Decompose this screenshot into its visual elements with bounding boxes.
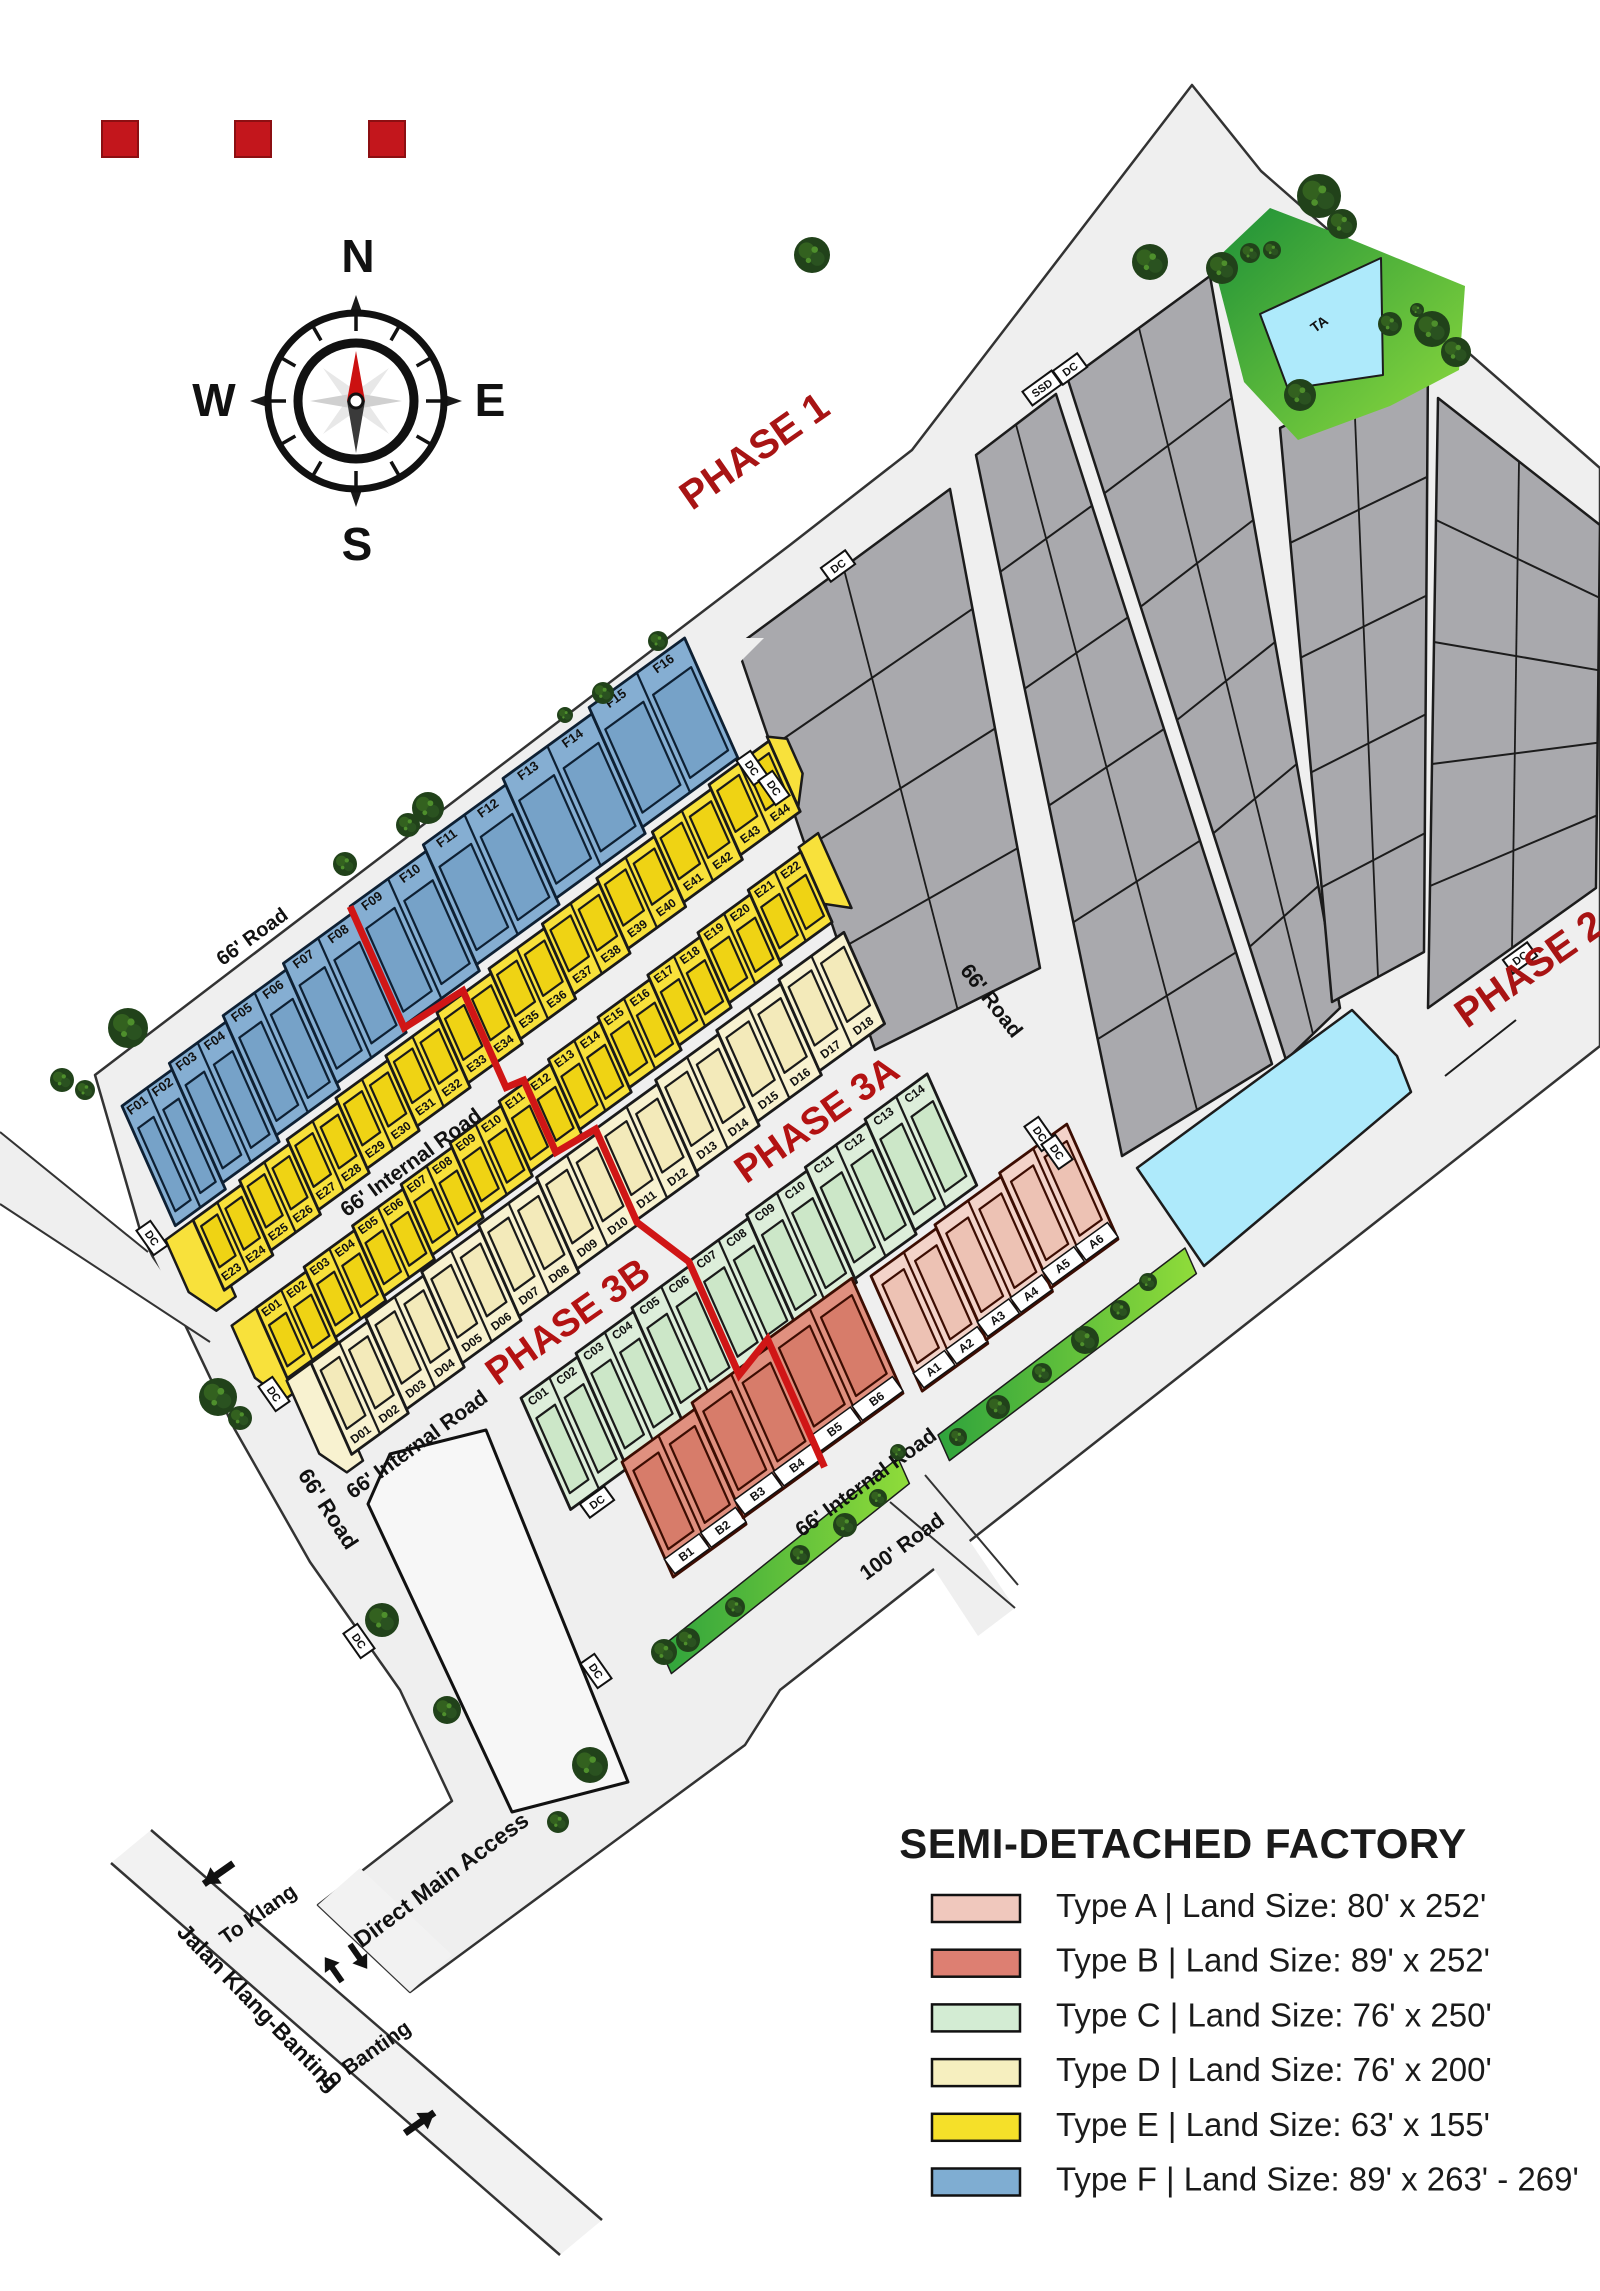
svg-text:N: N [341,230,374,282]
svg-text:SEMI-DETACHED FACTORY: SEMI-DETACHED FACTORY [899,1820,1466,1867]
svg-text:Type F | Land Size: 89' x 263': Type F | Land Size: 89' x 263' - 269' [1056,2161,1579,2198]
svg-text:Type D | Land Size: 76' x 200': Type D | Land Size: 76' x 200' [1056,2051,1492,2088]
svg-text:Type A | Land Size: 80' x 252': Type A | Land Size: 80' x 252' [1056,1887,1486,1924]
svg-text:Type C | Land Size: 76' x 250': Type C | Land Size: 76' x 250' [1056,1996,1492,2033]
svg-text:Type E | Land Size: 63' x 155': Type E | Land Size: 63' x 155' [1056,2106,1490,2143]
svg-text:W: W [192,374,236,426]
svg-text:E: E [475,374,506,426]
svg-text:S: S [342,518,373,570]
svg-text:Type B | Land Size: 89' x 252': Type B | Land Size: 89' x 252' [1056,1942,1490,1979]
